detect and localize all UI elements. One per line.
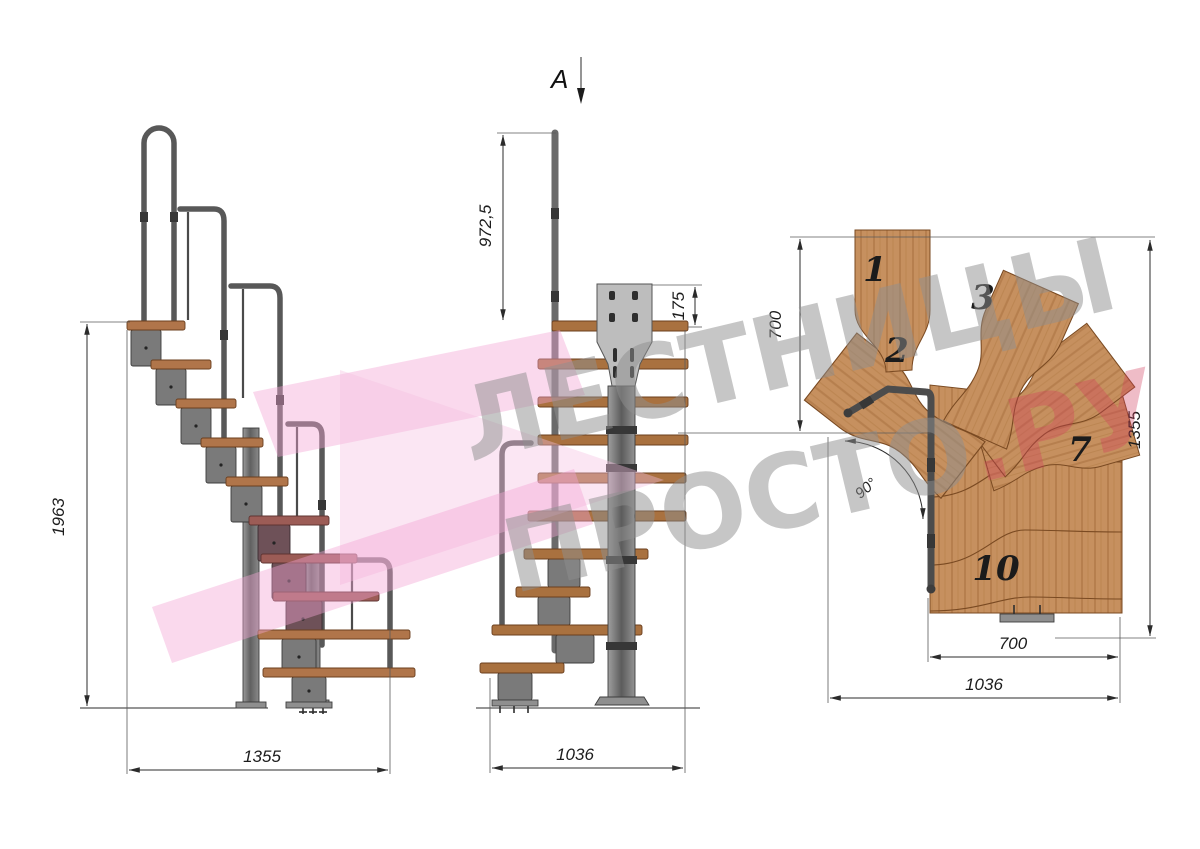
section-marker: A: [549, 57, 585, 104]
anchor-bolts: [500, 706, 528, 713]
staircase-blueprint: 1963 1355 A: [0, 0, 1200, 849]
section-letter: A: [549, 64, 568, 94]
section-arrow-icon: [577, 88, 585, 104]
dim-side-height: 1963: [49, 498, 68, 536]
mast-base-plate: [595, 697, 649, 705]
dim-front-width: 1036: [556, 745, 594, 764]
handrail-hairpin: [144, 128, 174, 330]
support-column: [243, 428, 259, 702]
step-number-10: 10: [972, 549, 1020, 589]
dim-plan-tread-length: 700: [999, 634, 1028, 653]
dim-side-length: 1355: [243, 747, 281, 766]
technical-drawing-page: 1963 1355 A: [0, 0, 1200, 849]
dim-plan-width: 1036: [965, 675, 1003, 694]
plan-base-plate: [1000, 614, 1054, 622]
dim-rail-height: 972,5: [476, 204, 495, 247]
column-base-plate: [236, 702, 266, 708]
